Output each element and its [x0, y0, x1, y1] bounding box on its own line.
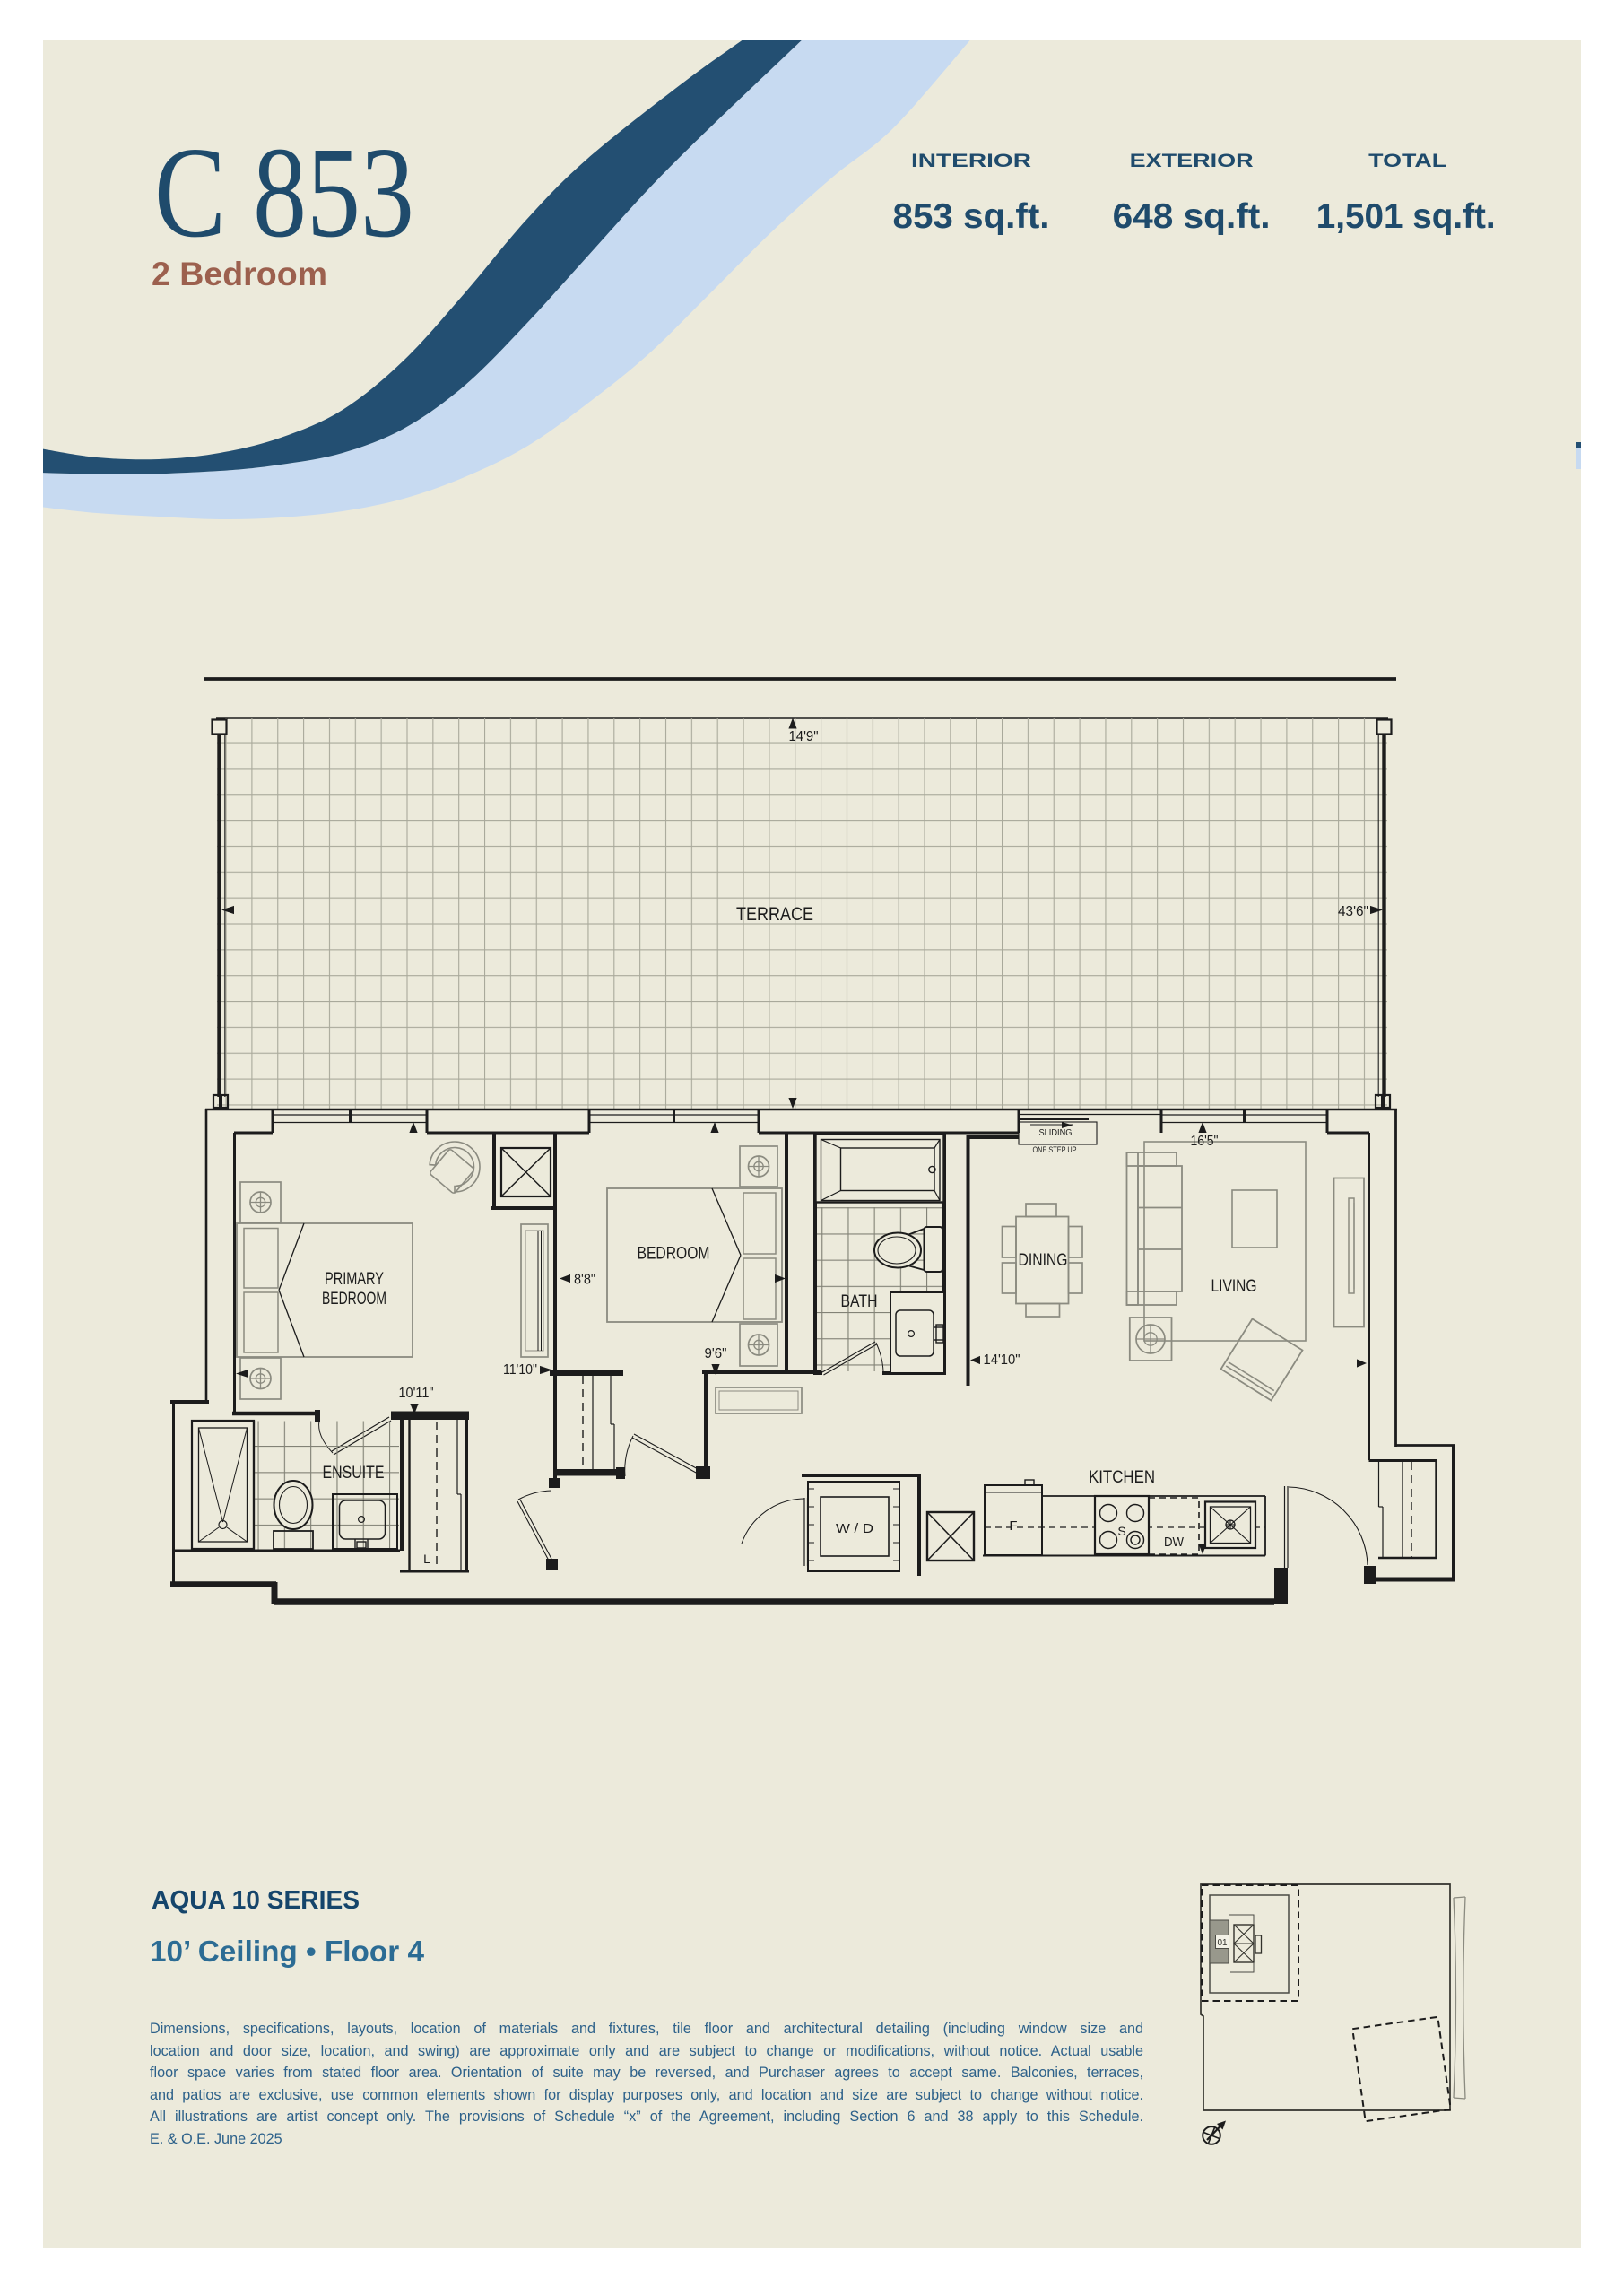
svg-text:EXTERIOR: EXTERIOR [1130, 151, 1254, 171]
svg-text:8'8": 8'8" [574, 1273, 595, 1288]
svg-text:AQUA 10 SERIES: AQUA 10 SERIES [152, 1886, 360, 1915]
svg-text:14'9": 14'9" [789, 729, 819, 744]
svg-text:BEDROOM: BEDROOM [638, 1244, 710, 1264]
svg-text:648 sq.ft.: 648 sq.ft. [1113, 197, 1271, 236]
svg-text:PRIMARY: PRIMARY [325, 1269, 384, 1289]
svg-text:DINING: DINING [1019, 1250, 1068, 1270]
svg-text:C 853: C 853 [154, 121, 414, 265]
svg-text:43'6": 43'6" [1338, 904, 1368, 919]
svg-text:10'11": 10'11" [399, 1386, 434, 1401]
svg-text:BATH: BATH [841, 1291, 878, 1311]
svg-text:2 Bedroom: 2 Bedroom [152, 256, 327, 292]
svg-text:L: L [423, 1552, 430, 1566]
svg-text:DW: DW [1164, 1535, 1184, 1550]
svg-text:TERRACE: TERRACE [736, 903, 813, 925]
svg-text:14'10": 14'10" [984, 1352, 1020, 1368]
svg-text:BEDROOM: BEDROOM [322, 1289, 386, 1309]
svg-text:01: 01 [1217, 1938, 1228, 1948]
svg-text:10’ Ceiling • Floor 4: 10’ Ceiling • Floor 4 [150, 1935, 425, 1968]
svg-text:F: F [1009, 1518, 1017, 1534]
svg-text:INTERIOR: INTERIOR [911, 151, 1031, 171]
svg-text:LIVING: LIVING [1211, 1276, 1257, 1296]
svg-text:S: S [1117, 1524, 1125, 1538]
svg-text:KITCHEN: KITCHEN [1089, 1467, 1155, 1487]
svg-text:SLIDING: SLIDING [1039, 1127, 1073, 1138]
svg-text:W / D: W / D [836, 1521, 873, 1536]
svg-text:1,501 sq.ft.: 1,501 sq.ft. [1316, 197, 1496, 236]
svg-text:853 sq.ft.: 853 sq.ft. [893, 197, 1050, 236]
svg-text:ENSUITE: ENSUITE [323, 1463, 385, 1483]
svg-text:9'6": 9'6" [705, 1346, 727, 1361]
svg-text:TOTAL: TOTAL [1368, 151, 1446, 171]
svg-text:16'5": 16'5" [1191, 1134, 1219, 1149]
svg-text:11'10": 11'10" [503, 1362, 537, 1378]
svg-text:ONE STEP UP: ONE STEP UP [1033, 1145, 1077, 1155]
